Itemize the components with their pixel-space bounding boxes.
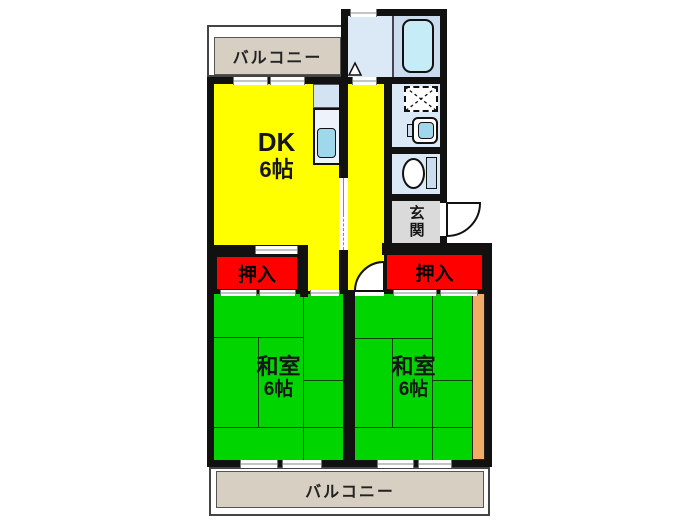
dk-size: 6帖 xyxy=(259,157,293,182)
washitsu-right-size: 6帖 xyxy=(399,379,429,401)
room-washitsu-left-label: 和室 6帖 xyxy=(214,345,343,411)
door-swing-overlay xyxy=(0,0,700,525)
door-swing-marker xyxy=(349,63,361,75)
room-dk-label: DK 6帖 xyxy=(214,120,339,190)
washitsu-left-size: 6帖 xyxy=(264,379,294,401)
genkan-label: 玄関 xyxy=(392,201,440,243)
room-washitsu-right-label: 和室 6帖 xyxy=(355,345,472,411)
washitsu-right-name: 和室 xyxy=(391,355,435,379)
washitsu-left-name: 和室 xyxy=(256,355,300,379)
interior-door-swing xyxy=(355,262,384,291)
floor-plan: バルコニー バルコニー xyxy=(0,0,700,525)
entry-door-swing xyxy=(447,203,480,236)
washer-cross-lines xyxy=(405,87,437,111)
dk-name: DK xyxy=(258,128,296,157)
